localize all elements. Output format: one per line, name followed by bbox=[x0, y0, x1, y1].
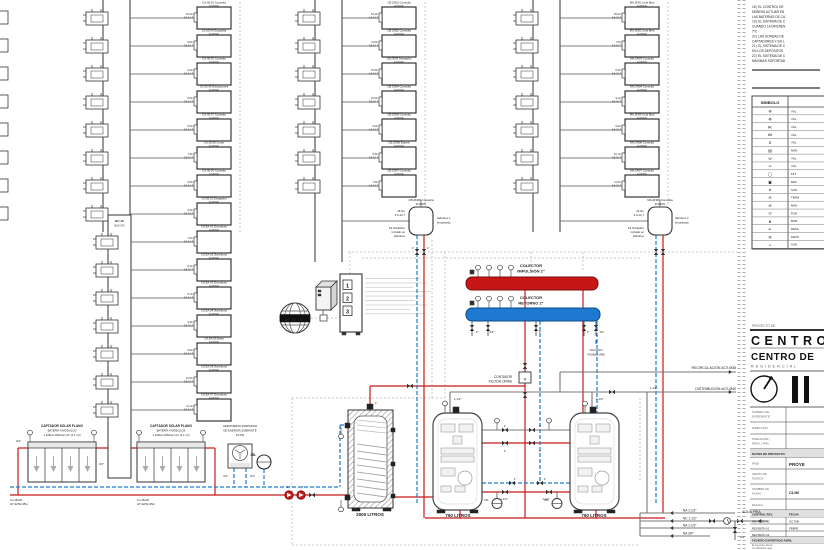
note-line: 7ºC bbox=[752, 30, 758, 34]
field-poblacion-1: POBLACIÓN | bbox=[752, 436, 770, 441]
room-unit-tab bbox=[379, 153, 382, 162]
pipe-size-label: 3/4" bbox=[223, 474, 228, 478]
legend-label: DEPÓ bbox=[791, 234, 800, 239]
legend-symbol-vál: ⋈ bbox=[768, 132, 772, 137]
tank-panel bbox=[459, 424, 473, 432]
fan-coil-core bbox=[91, 155, 103, 162]
branch-spec-label: 0,6-10,7 bbox=[184, 325, 194, 328]
unit-name-label: MA.ZN04 Consulta bbox=[630, 85, 654, 89]
tank-panel bbox=[578, 456, 611, 462]
valve-icon bbox=[537, 481, 543, 485]
unit-model-label: FUZION bbox=[637, 145, 646, 148]
panel-foot bbox=[342, 332, 346, 335]
fan-coil-core bbox=[101, 295, 113, 302]
tank-panel bbox=[578, 486, 588, 492]
pipe-size-label: 3/4" bbox=[600, 330, 605, 334]
branch-spec-label: 0,6-10,7 bbox=[184, 17, 194, 20]
tank-fitting bbox=[391, 462, 395, 466]
field-nombre-1: NOMBRE DE bbox=[752, 487, 769, 491]
solar-battery-header bbox=[137, 442, 205, 448]
branch-spec-label: 0,6-10,7 bbox=[184, 73, 194, 76]
branch-spec-label: 0,6-10,7 bbox=[184, 381, 194, 384]
room-unit bbox=[382, 147, 416, 169]
legend-label: BOM bbox=[791, 219, 798, 223]
unit-name-label: CA.EA.03 Dormitorio bbox=[201, 281, 227, 285]
note-line: EN LOS DEPÓSITOS bbox=[752, 48, 783, 53]
flow-arrow bbox=[670, 511, 673, 515]
note-line: CUANDO LA DIFEREN bbox=[752, 25, 786, 29]
fan-coil-core bbox=[303, 99, 315, 106]
unit-name-label: CA.05.08 Curas bbox=[204, 141, 225, 145]
pipe-size-label: 1" bbox=[539, 449, 542, 453]
na-pipe-label: NA 3/4" bbox=[683, 532, 694, 536]
tank-fitting bbox=[453, 407, 459, 413]
gauge-icon bbox=[487, 296, 492, 301]
unit-name-label: CA.EA.01 Dormitorio bbox=[201, 225, 227, 229]
gauge-icon bbox=[476, 265, 481, 270]
hidrobox2-label-1: Hidrobox 2 bbox=[675, 216, 689, 220]
logo-needle-dot bbox=[769, 376, 773, 380]
room-unit-tab bbox=[194, 377, 197, 386]
fan-coil-core bbox=[521, 155, 533, 162]
note-line: CAPTADORES Y EN L bbox=[752, 39, 785, 43]
tank-750l-b-label: 750 LITROS bbox=[581, 513, 606, 518]
fan-coil-core bbox=[303, 71, 315, 78]
unit-name-label: CA.EA.07 Dormitorio bbox=[201, 393, 227, 397]
room-unit bbox=[382, 63, 416, 85]
control-rev-label: CONTROL REV. bbox=[752, 513, 773, 517]
panel-cell-1: 1 bbox=[346, 284, 349, 290]
branch-spec-label: 0,6-10,7 bbox=[184, 353, 194, 356]
branch-spec-label: 0,6-10,7 bbox=[612, 129, 622, 132]
hidrobox-unit bbox=[648, 207, 672, 235]
contador-label-1: CONTADOR bbox=[494, 375, 513, 379]
fan-coil-core bbox=[521, 99, 533, 106]
branch-spec-label: 0,6-10,7 bbox=[184, 185, 194, 188]
unit-model-label: FUZION bbox=[209, 145, 218, 148]
project-title-3: RESIDENCIAL bbox=[751, 365, 798, 369]
gauge-icon bbox=[443, 401, 448, 406]
branch-spec-label: 0,6-10,7 bbox=[612, 101, 622, 104]
valve-icon bbox=[529, 441, 535, 445]
fan-coil-core bbox=[303, 43, 315, 50]
unit-model-label: FUZION bbox=[209, 89, 218, 92]
tank-panel bbox=[441, 448, 474, 454]
field-expediente-1: NÚMERO DE bbox=[752, 409, 769, 414]
legend-label: DES bbox=[791, 180, 797, 184]
room-unit-tab bbox=[194, 349, 197, 358]
pipe-size-label: 1" bbox=[539, 424, 542, 428]
hidrobox2-label-2: encastrado bbox=[675, 221, 689, 225]
tank-750l-a-label: 750 LITROS bbox=[445, 513, 470, 518]
collector-return-label-1: COLECTOR bbox=[520, 295, 542, 300]
valve-icon bbox=[523, 392, 527, 398]
tank-panel bbox=[441, 424, 455, 432]
fan-coil-core bbox=[303, 155, 315, 162]
hidrobox2-unit-model: FUZION bbox=[655, 202, 665, 206]
fan-coil-unit-cut bbox=[0, 179, 8, 192]
branch-spec-label: 0,6-10,7 bbox=[184, 129, 194, 132]
pipe-size-label: 1" bbox=[411, 246, 414, 250]
pipe-size-label: 1-1/2" bbox=[542, 497, 549, 501]
fan-coil-unit-cut bbox=[0, 207, 8, 220]
valve-icon bbox=[709, 519, 715, 523]
distribucion-label: DISTRIBUCIÓN ACS Ø40 bbox=[695, 386, 736, 391]
room-unit-tab bbox=[622, 69, 625, 78]
pipe-size-label: 1-1/2" bbox=[454, 397, 461, 401]
datos-proyecto-band: DATOS DE PROYECTO bbox=[752, 452, 786, 456]
valve-icon bbox=[509, 481, 515, 485]
fan-coil-unit-cut bbox=[0, 95, 8, 108]
unit-model-label: FUZION bbox=[209, 33, 218, 36]
legend-label: VÁL bbox=[791, 156, 797, 160]
tank-panel bbox=[592, 486, 602, 492]
legend-label: MAN bbox=[791, 203, 797, 207]
gauge-icon bbox=[583, 401, 588, 406]
unit-model-label: FUZION bbox=[209, 61, 218, 64]
legend-label: VÁL bbox=[791, 109, 797, 113]
legend-label: FILT bbox=[791, 172, 797, 176]
na-pipe-label: NA 1-1/2" bbox=[683, 509, 697, 513]
valve-icon bbox=[309, 493, 315, 497]
legend-symbol-man: ▤ bbox=[768, 148, 772, 153]
unit-model-label: FUZION bbox=[394, 5, 403, 8]
fan-coil-unit-cut bbox=[0, 67, 8, 80]
unit-model-label: FUZION bbox=[394, 117, 403, 120]
valve-icon bbox=[502, 428, 508, 432]
expansion-vessel-label: 12L bbox=[484, 498, 489, 502]
fan-coil-core bbox=[101, 323, 113, 330]
controller-led bbox=[318, 294, 321, 296]
note-line: 21 | EL SISTEMA DE C bbox=[752, 44, 786, 48]
valve-icon bbox=[546, 490, 552, 494]
room-unit-tab bbox=[622, 181, 625, 190]
unit-name-label: CA.05.04 Ecografía bbox=[202, 29, 227, 33]
tank-dial bbox=[458, 471, 472, 485]
unit-model-label: FUZION bbox=[637, 33, 646, 36]
field-fase: FASE bbox=[752, 462, 759, 466]
room-unit bbox=[382, 119, 416, 141]
gauge-icon bbox=[509, 296, 514, 301]
legend-symbol-vál: Ƨ bbox=[769, 140, 772, 145]
room-unit-tab bbox=[194, 293, 197, 302]
solar-battery-sub: BATERÍA 4 MÓDULOS bbox=[157, 428, 186, 433]
room-unit bbox=[382, 91, 416, 113]
room-unit-tab bbox=[194, 13, 197, 22]
unit-name-label: CA.EA.04 Dormitorio bbox=[201, 309, 227, 313]
room-unit bbox=[625, 35, 659, 57]
field-direccion: DIRECCIÓN bbox=[752, 425, 768, 430]
fan-coil-unit-cut bbox=[0, 11, 8, 24]
revision-02-label: REVISIÓN 02 bbox=[752, 532, 770, 537]
unit-name-label: CA.05.09 Consulta bbox=[202, 169, 226, 173]
pipe-size-label: 1" bbox=[427, 246, 430, 250]
revision-00-value: OCTUB bbox=[789, 520, 799, 524]
solar-battery-title: CAPTADOR SOLAR PLANO bbox=[41, 424, 83, 428]
junction-box bbox=[320, 315, 327, 321]
unit-name-label: CA.05.10 Despacho bbox=[201, 197, 226, 201]
pipe-size-label: 1" bbox=[375, 401, 378, 405]
unit-name-label: CB.ZN03 Despacho bbox=[387, 57, 412, 61]
room-unit bbox=[197, 91, 231, 113]
room-unit bbox=[625, 63, 659, 85]
room-unit-tab bbox=[194, 125, 197, 134]
bc-riser-header-2: BUS 070 bbox=[114, 225, 125, 228]
pipe-size-label: 1" bbox=[504, 449, 507, 453]
room-unit bbox=[382, 7, 416, 29]
legend-title: SÍMBOLO bbox=[761, 100, 780, 105]
unit-model-label: FUZION bbox=[209, 229, 218, 232]
tank-fitting bbox=[367, 404, 373, 409]
branch-spec-label: 0,6-10,7 bbox=[184, 101, 194, 104]
fan-coil-core bbox=[101, 379, 113, 386]
na-pipe-label: NA 1-1/2" bbox=[683, 524, 697, 528]
fan-coil-core bbox=[91, 183, 103, 190]
legend-label: MAN bbox=[791, 149, 797, 153]
pipe-size-label: 3/4" bbox=[16, 439, 21, 443]
field-nombre-2: PLANO bbox=[752, 492, 762, 496]
gauge-icon bbox=[201, 430, 206, 435]
tank-foot bbox=[352, 508, 360, 511]
vessel-35l-label: 35L bbox=[251, 453, 257, 457]
revision-01-label: REVISIÓN 01 bbox=[752, 526, 770, 531]
pipe-size-label: 1" bbox=[539, 330, 542, 334]
gauge-icon bbox=[509, 265, 514, 270]
tank-panel bbox=[441, 486, 451, 492]
hidrobox1-kit-3: Hidrobox bbox=[394, 234, 406, 238]
note-line: 20 | LAS SONDAS DE bbox=[752, 34, 784, 38]
vaciado-label-2: VISIBLE Ø40 bbox=[587, 353, 605, 357]
unit-name-label: MA.ZN07 Consulta bbox=[630, 169, 654, 173]
legend-symbol-desa: ↵ bbox=[768, 226, 771, 231]
logo-letter-bar bbox=[804, 376, 809, 403]
room-unit bbox=[197, 315, 231, 337]
project-title-big: CENTRO bbox=[751, 334, 824, 348]
tank-fitting bbox=[590, 407, 596, 413]
legend-symbol-filt: ◯ bbox=[768, 171, 773, 176]
branch-spec-label: 0,6-10,7 bbox=[612, 45, 622, 48]
fan-coil-core bbox=[91, 99, 103, 106]
revision-01-value: FEBRE bbox=[789, 527, 798, 531]
room-unit bbox=[197, 35, 231, 57]
fan-coil-core bbox=[91, 71, 103, 78]
pipe-size-label: 1" bbox=[544, 477, 547, 481]
fan-coil-core bbox=[521, 71, 533, 78]
aerotermo-label-3: 16 KW bbox=[236, 433, 245, 437]
valve-icon bbox=[523, 363, 527, 369]
room-unit bbox=[197, 231, 231, 253]
unit-name-label: CA.05.06 Extracciones bbox=[200, 85, 229, 89]
unit-name-label: CA.05.05 Consulta bbox=[202, 57, 226, 61]
pipe-size-label: 1" bbox=[302, 485, 305, 489]
field-escala: ESCALA bbox=[752, 503, 763, 507]
aerotermo-label-2: DE ENERGÍA SOBRANTE bbox=[223, 429, 256, 433]
pipe-size-label: 3/4" bbox=[250, 474, 255, 478]
room-unit-tab bbox=[622, 125, 625, 134]
legend-label: DESA bbox=[791, 227, 799, 231]
collector-supply-label-1: COLECTOR bbox=[520, 263, 542, 268]
branch-spec-label: 0,6-10,7 bbox=[612, 17, 622, 20]
branch-spec-label: 0,6-10,7 bbox=[369, 17, 379, 20]
tank-panel bbox=[453, 436, 462, 444]
unit-name-label: CA.EA.06 Dormitorio bbox=[201, 365, 227, 369]
room-unit-tab bbox=[379, 125, 382, 134]
fan-coil-unit-cut bbox=[0, 123, 8, 136]
schematic-canvas: CA.05.03 ConsultaFUZION10,6m0,6-10,7CA.0… bbox=[0, 0, 824, 550]
fan-coil-core bbox=[303, 127, 315, 134]
unit-name-label: CA.05.03 Consulta bbox=[202, 1, 226, 5]
bc-riser-header-1: BC 16 bbox=[115, 219, 124, 223]
tank-panel bbox=[578, 448, 611, 454]
unit-model-label: FUZION bbox=[209, 201, 218, 204]
flow-arrow bbox=[670, 526, 673, 530]
tank-dial bbox=[595, 471, 609, 485]
legend-symbol-vál: ⊕ bbox=[768, 109, 771, 114]
valve-icon bbox=[502, 490, 508, 494]
room-unit bbox=[625, 175, 659, 197]
unit-model-label: FUZION bbox=[637, 5, 646, 8]
unit-name-label: CB.ZN02 Consulta bbox=[387, 29, 411, 33]
room-unit bbox=[197, 371, 231, 393]
logo-letter-bar bbox=[792, 376, 798, 403]
pipe-size-label: 1" bbox=[287, 485, 290, 489]
room-unit-tab bbox=[379, 41, 382, 50]
pipe-size-label: 1" bbox=[504, 424, 507, 428]
legend-symbol-vál: ∞ bbox=[769, 164, 772, 169]
controller-led bbox=[318, 290, 321, 292]
tank-panel bbox=[596, 424, 610, 432]
valve-icon bbox=[609, 390, 615, 394]
fan-coil-core bbox=[303, 15, 315, 22]
valve-icon bbox=[470, 325, 474, 331]
note-line: 22 | EL SISTEMA DE C bbox=[752, 54, 786, 58]
pipe-size-label: 3/4" bbox=[99, 462, 104, 466]
room-unit-tab bbox=[194, 69, 197, 78]
legend-symbol-son: ⊥ bbox=[768, 242, 772, 247]
room-unit-tab bbox=[622, 13, 625, 22]
unit-name-label: CB.ZN01 Consulta bbox=[387, 1, 411, 5]
vaciado-label-1: VACIADO bbox=[589, 348, 603, 352]
proyecto-de-label: PROYECTO DE: bbox=[752, 324, 776, 328]
flow-arrow bbox=[670, 534, 673, 538]
room-unit-tab bbox=[194, 209, 197, 218]
gauge-icon bbox=[495, 418, 500, 423]
solar-battery-dims: 1.108x2.118x112 mm (2,1 m²) bbox=[152, 433, 189, 437]
room-unit-tab bbox=[194, 265, 197, 274]
gauge-icon bbox=[547, 418, 552, 423]
legend-label: PUR bbox=[791, 211, 797, 215]
unit-model-label: FUZION bbox=[394, 33, 403, 36]
room-unit-tab bbox=[379, 13, 382, 22]
legend-label: VÁL bbox=[791, 141, 797, 145]
tank-foot bbox=[437, 510, 445, 513]
tank-panel bbox=[441, 468, 455, 476]
room-unit-tab bbox=[194, 97, 197, 106]
unit-model-label: FUZION bbox=[209, 285, 218, 288]
legend-label: SON bbox=[791, 188, 797, 192]
water-meter-icon bbox=[724, 518, 731, 525]
room-unit bbox=[625, 91, 659, 113]
legend-symbol-depó: ⊜ bbox=[768, 234, 771, 239]
pipe-size-label: 1" bbox=[514, 477, 517, 481]
collector-return-bar bbox=[466, 308, 600, 321]
tank-foot bbox=[383, 508, 391, 511]
valve-icon bbox=[529, 428, 535, 432]
branch-spec-label: 0,6-10,7 bbox=[184, 45, 194, 48]
branch-spec-label: 0,6-10,7 bbox=[184, 297, 194, 300]
room-unit bbox=[197, 399, 231, 421]
room-unit-tab bbox=[194, 321, 197, 330]
fan-coil-unit-cut bbox=[0, 151, 8, 164]
gauge-icon bbox=[339, 434, 344, 439]
note-line: LAS BATERÍAS DE CA bbox=[752, 15, 786, 19]
unit-name-label: MA.ZN06 Consulta bbox=[630, 141, 654, 145]
hidrobox1-unit-model: FUZION bbox=[416, 202, 426, 206]
collector-supply-label-2: IMPULSIÓN 2" bbox=[517, 269, 545, 274]
unit-model-label: FUZION bbox=[394, 89, 403, 92]
fan-coil-unit-cut bbox=[0, 39, 8, 52]
hidrobox-unit bbox=[409, 207, 433, 235]
tank-fitting bbox=[345, 495, 350, 500]
pipe-size-label: 1-1/2" bbox=[650, 386, 657, 390]
room-unit bbox=[197, 119, 231, 141]
flow-arrow bbox=[729, 370, 732, 374]
room-unit-tab bbox=[194, 153, 197, 162]
tank-panel bbox=[590, 436, 599, 444]
tank-fitting bbox=[345, 423, 350, 428]
valve-icon bbox=[415, 249, 419, 255]
solar-pipe-note-2: HT-32/52-35H bbox=[137, 502, 155, 506]
gauge-icon bbox=[92, 430, 97, 435]
gauge-icon bbox=[137, 430, 142, 435]
room-unit bbox=[382, 175, 416, 197]
pipe-size-label: 3/4" bbox=[490, 330, 495, 334]
room-unit bbox=[197, 259, 231, 281]
branch-spec-label: 0,6-10,7 bbox=[369, 73, 379, 76]
note-line: 18 | EL CONTROL DE bbox=[752, 5, 784, 9]
room-unit bbox=[197, 343, 231, 365]
tank-foot bbox=[470, 510, 478, 513]
room-unit-tab bbox=[194, 405, 197, 414]
hidrobox1-label-2: encastrado bbox=[437, 221, 451, 225]
fan-coil-core bbox=[521, 15, 533, 22]
pipe-size-label: 2" bbox=[476, 330, 479, 334]
gauge-icon bbox=[487, 265, 492, 270]
generated-text: CA.05.03 ConsultaFUZION10,6m0,6-10,7CA.0… bbox=[184, 1, 824, 544]
tank-fitting bbox=[391, 428, 395, 432]
branch-spec-label: 0,6-10,7 bbox=[184, 157, 194, 160]
room-unit bbox=[625, 119, 659, 141]
air-vent-icon bbox=[470, 301, 474, 305]
tank-panel bbox=[578, 468, 592, 476]
unit-model-label: FUZION bbox=[209, 257, 218, 260]
unit-model-label: FUZION bbox=[637, 173, 646, 176]
unit-model-label: FUZION bbox=[394, 173, 403, 176]
hidrobox1-label-1: Hidrobox 1 bbox=[437, 216, 451, 220]
room-unit bbox=[382, 35, 416, 57]
fan-coil-core bbox=[91, 15, 103, 22]
legend-label: VÁL bbox=[791, 117, 797, 121]
legend-symbol-man: ⊘ bbox=[768, 203, 771, 208]
fan-coil-core bbox=[91, 127, 103, 134]
field-nombre-value: CLIM bbox=[789, 490, 799, 495]
unit-name-label: MA.ZN05 Unid Med bbox=[630, 113, 655, 117]
panel-cell-3: 3 bbox=[346, 310, 349, 316]
fan-coil-core bbox=[521, 183, 533, 190]
gauge-icon bbox=[339, 507, 344, 512]
unit-model-label: FUZION bbox=[394, 145, 403, 148]
legend-symbol-vál: ⊗ bbox=[768, 117, 771, 122]
